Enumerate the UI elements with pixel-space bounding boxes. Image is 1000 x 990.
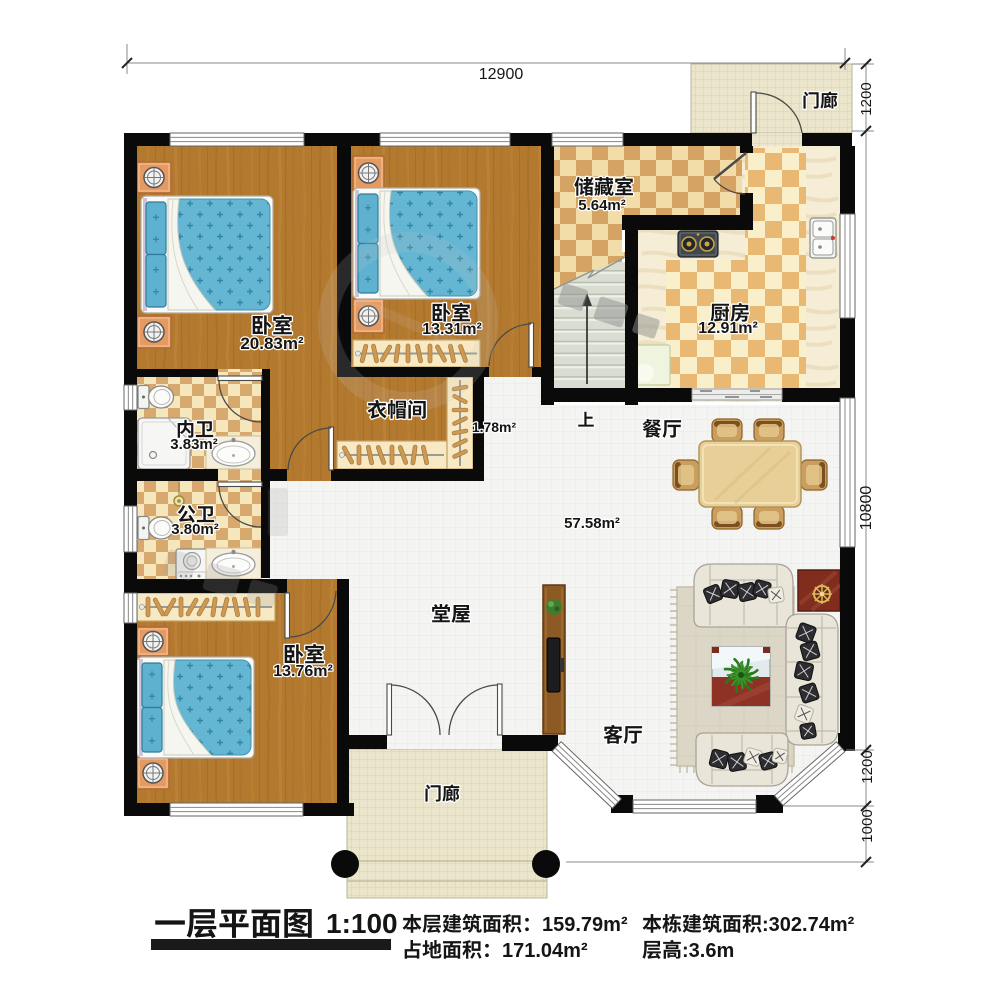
svg-text::302.74m²: :302.74m² <box>762 914 855 936</box>
svg-text:1:100: 1:100 <box>326 908 398 939</box>
svg-text:12900: 12900 <box>479 66 524 83</box>
svg-text:12.91m²: 12.91m² <box>698 320 758 337</box>
svg-text:1.78m²: 1.78m² <box>472 419 517 435</box>
svg-text:13.76m²: 13.76m² <box>273 663 333 680</box>
svg-text:1200: 1200 <box>859 750 876 783</box>
svg-text:5.64m²: 5.64m² <box>578 197 626 214</box>
svg-text:3.83m²: 3.83m² <box>170 436 218 453</box>
svg-text:159.79m²: 159.79m² <box>542 914 628 936</box>
svg-text:171.04m²: 171.04m² <box>502 940 588 962</box>
svg-text:20.83m²: 20.83m² <box>240 334 304 353</box>
svg-text::3.6m: :3.6m <box>682 940 734 962</box>
svg-text:1000: 1000 <box>859 809 876 842</box>
svg-text:3.80m²: 3.80m² <box>171 521 219 538</box>
svg-text:10800: 10800 <box>858 486 875 531</box>
svg-text:13.31m²: 13.31m² <box>422 321 482 338</box>
svg-text:1200: 1200 <box>858 82 875 115</box>
svg-text:57.58m²: 57.58m² <box>564 515 620 532</box>
